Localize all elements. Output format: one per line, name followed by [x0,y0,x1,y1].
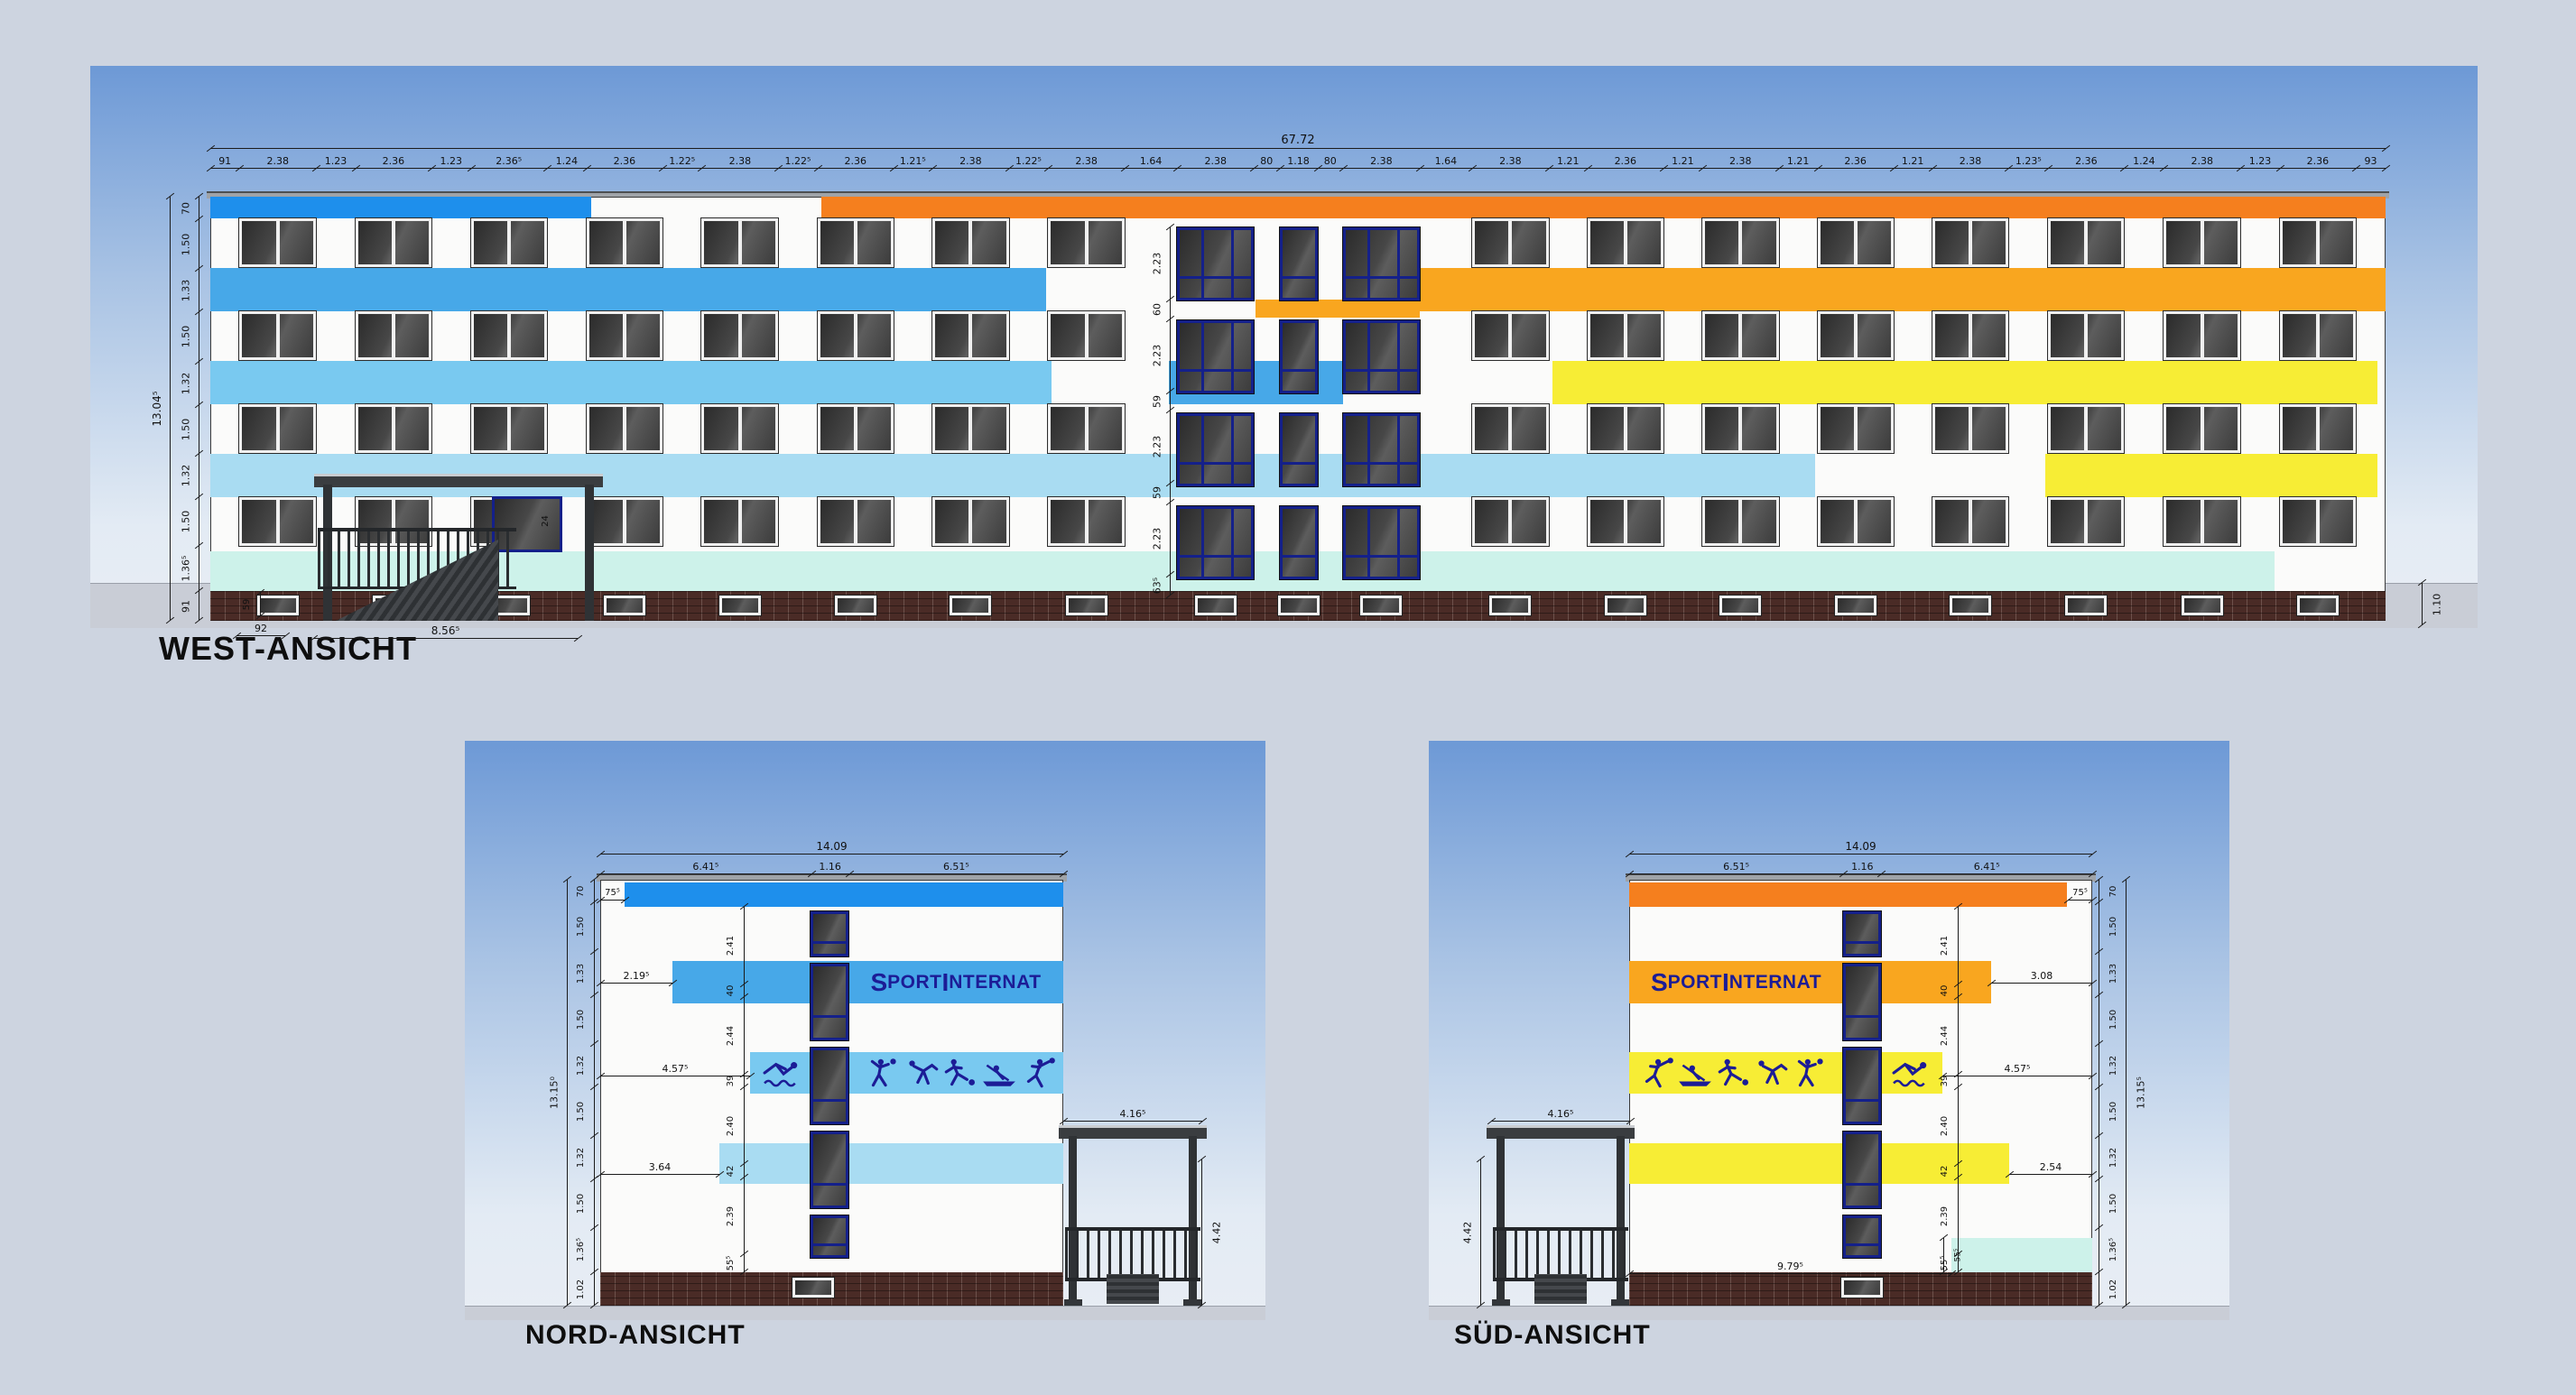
window-mullion [1367,416,1370,484]
stairwell-window [811,964,848,1040]
window-mullion [968,407,972,450]
stairwell-window [1343,506,1420,579]
window [356,311,431,360]
window-mullion [1624,500,1627,543]
window [239,218,316,267]
basement-window [1719,596,1761,615]
window-transom [1283,369,1315,372]
basement-window [1066,596,1107,615]
facade-band [625,882,1063,907]
stairwell-window [811,911,848,956]
window-mullion [2316,407,2320,450]
window [2280,404,2356,453]
basement-window [792,1278,834,1298]
window-transom [1180,462,1251,465]
stairwell-window [1177,320,1254,393]
basement-window [1360,596,1402,615]
window-mullion [1508,407,1512,450]
window-mullion [854,221,857,264]
window [2280,497,2356,546]
window-mullion [1854,500,1858,543]
stairwell-window [1843,1215,1881,1258]
window [1048,497,1125,546]
window [1048,311,1125,360]
window-transom [1283,276,1315,279]
window-mullion [1085,407,1089,450]
porch-footing [1183,1299,1201,1306]
porch-footing [1492,1299,1510,1306]
stairwell-window [1843,911,1881,956]
basement-window [257,596,299,615]
basement-window [719,596,761,615]
window [1588,497,1663,546]
window-mullion [1367,230,1370,298]
window-mullion [1738,221,1742,264]
window-mullion [1231,416,1234,484]
basement-window [1841,1278,1883,1298]
basement-window [1195,596,1237,615]
facade-band [2045,454,2377,497]
window [1588,404,1663,453]
window-mullion [1969,407,1972,450]
window [932,404,1009,453]
window [2048,497,2124,546]
window-transom [1180,276,1251,279]
stairwell-window [811,1215,848,1258]
basement-window [2182,596,2223,615]
window [356,218,431,267]
window-mullion [507,314,511,357]
window-mullion [1854,314,1858,357]
window-mullion [738,407,742,450]
porch-footing [1611,1299,1629,1306]
window [1048,404,1125,453]
window-mullion [1397,230,1400,298]
window-mullion [1231,509,1234,577]
window-mullion [2316,314,2320,357]
window [1932,218,2009,267]
stairwell-window [1280,413,1318,486]
porch-railing [1493,1227,1628,1281]
window [2048,218,2124,267]
stairwell-window [1280,506,1318,579]
window [587,497,663,546]
window-mullion [968,314,972,357]
window-mullion [1854,407,1858,450]
window [2164,404,2240,453]
window-mullion [1231,323,1234,391]
window-mullion [392,314,395,357]
window-mullion [2084,314,2088,357]
window-transom [1846,941,1878,944]
window [239,404,316,453]
window-transom [1283,555,1315,558]
stairwell-window [1343,227,1420,300]
window [2280,311,2356,360]
window [701,404,778,453]
window [1472,404,1549,453]
window [471,404,547,453]
sport-pictogram-volleyball-icon [865,1058,903,1092]
window-mullion [1085,221,1089,264]
window [2164,218,2240,267]
gable-ground [1429,1306,2229,1320]
window-mullion [1508,500,1512,543]
drawing-canvas: WEST-ANSICHT NORD-ANSICHT SÜD-ANSICHT 67… [0,0,2576,1395]
window-mullion [2084,407,2088,450]
facade-band [1629,1143,2009,1184]
window-mullion [1085,314,1089,357]
window-transom [813,941,846,944]
window-mullion [2316,221,2320,264]
window [239,497,316,546]
stairwell-window [1177,413,1254,486]
sport-pictogram-rowing-icon [1676,1058,1714,1092]
basement-window [2065,596,2107,615]
window [356,404,431,453]
north-elevation-title: NORD-ANSICHT [525,1320,746,1351]
window-mullion [738,221,742,264]
window-mullion [1201,416,1204,484]
window [587,404,663,453]
stairwell-window [1343,320,1420,393]
porch-railing [1065,1227,1200,1281]
facade-band [1951,1238,2092,1272]
porch-stairs [1107,1274,1159,1304]
basement-window [604,596,645,615]
window [701,497,778,546]
basement-window [1489,596,1531,615]
window [1932,404,2009,453]
facade-band [1420,268,2386,311]
window [1702,497,1779,546]
porch-roof [1487,1125,1635,1139]
sportinternat-logo: SPORTINTERNAT [1629,961,1843,1003]
window [818,218,894,267]
window-mullion [1397,416,1400,484]
window [471,311,547,360]
window [1818,404,1894,453]
gable-ground [465,1306,1265,1320]
window-mullion [1508,221,1512,264]
window-transom [813,1183,846,1186]
window [1818,497,1894,546]
basement-window [950,596,991,615]
stairwell-window [1343,413,1420,486]
window-mullion [1624,221,1627,264]
window-transom [813,1099,846,1102]
window-transom [1346,462,1417,465]
window-mullion [1854,221,1858,264]
window-transom [1846,1243,1878,1246]
window-mullion [2316,500,2320,543]
window-mullion [2084,500,2088,543]
window-transom [1283,462,1315,465]
stairwell-window [1280,227,1318,300]
window-mullion [623,407,626,450]
window-mullion [1231,230,1234,298]
stairwell-window [1177,227,1254,300]
window-mullion [1201,323,1204,391]
window-transom [1846,1183,1878,1186]
window-mullion [276,500,280,543]
window [932,497,1009,546]
window [932,311,1009,360]
sport-pictogram-handball-icon [1638,1058,1676,1092]
window [1588,218,1663,267]
window-transom [1180,369,1251,372]
window-mullion [1738,500,1742,543]
sport-pictogram-soccer-icon [941,1058,978,1092]
window-transom [1346,369,1417,372]
window-mullion [1624,407,1627,450]
window-mullion [392,407,395,450]
sport-pictogram-judo-icon [1752,1058,1790,1092]
window [2164,311,2240,360]
window-mullion [623,500,626,543]
window [239,311,316,360]
window [701,311,778,360]
window [1818,218,1894,267]
window [1818,311,1894,360]
window-mullion [276,407,280,450]
window-mullion [1969,500,1972,543]
sport-pictogram-rowing-icon [980,1058,1018,1092]
stairwell-window [1843,964,1881,1040]
window-mullion [738,314,742,357]
window-mullion [854,407,857,450]
window-mullion [1508,314,1512,357]
window-mullion [968,500,972,543]
window-mullion [2201,407,2204,450]
basement-window [1950,596,1991,615]
window [2280,218,2356,267]
window-mullion [2201,500,2204,543]
window-mullion [1738,314,1742,357]
basement-window [1835,596,1876,615]
window-mullion [2201,221,2204,264]
window-mullion [507,407,511,450]
porch-roof [314,474,603,487]
sport-pictogram-swimming-icon [763,1058,801,1092]
window-transom [1180,555,1251,558]
window-transom [1846,1099,1878,1102]
west-elevation-title: WEST-ANSICHT [159,630,417,668]
porch-footing [1064,1299,1082,1306]
facade-band [210,361,1052,404]
sport-pictogram-soccer-icon [1714,1058,1752,1092]
window [471,218,547,267]
porch-column [585,485,594,621]
window-mullion [968,221,972,264]
window [2164,497,2240,546]
window [1702,404,1779,453]
porch-roof [1059,1125,1207,1139]
window-transom [1346,555,1417,558]
window-transom [813,1015,846,1018]
window [2048,311,2124,360]
window [818,311,894,360]
window [1932,497,2009,546]
window-mullion [1201,230,1204,298]
facade-band [719,1143,1063,1184]
window [932,218,1009,267]
window-mullion [507,221,511,264]
window [1048,218,1125,267]
window [1702,218,1779,267]
sportinternat-logo: SPORTINTERNAT [848,961,1063,1003]
stairwell-window [1280,320,1318,393]
window-mullion [623,221,626,264]
window-transom [813,1243,846,1246]
facade-band [1552,361,2377,404]
window-mullion [1624,314,1627,357]
window-mullion [1969,221,1972,264]
window-mullion [1201,509,1204,577]
stairwell-window [1177,506,1254,579]
window [1472,497,1549,546]
sport-pictogram-judo-icon [903,1058,941,1092]
facade-band [1629,882,2067,907]
window-mullion [854,500,857,543]
window-mullion [1397,509,1400,577]
window-mullion [1397,323,1400,391]
stairwell-window [811,1048,848,1124]
window-mullion [738,500,742,543]
basement-window [1278,596,1320,615]
window-mullion [1969,314,1972,357]
window [587,218,663,267]
window [701,218,778,267]
stairwell-window [811,1132,848,1208]
facade-band [821,197,2386,218]
facade-band [210,197,591,218]
window-mullion [2084,221,2088,264]
window-mullion [2201,314,2204,357]
window-transom [1346,276,1417,279]
south-elevation-title: SÜD-ANSICHT [1454,1320,1651,1351]
basement-window [1605,596,1646,615]
sport-pictogram-volleyball-icon [1792,1058,1830,1092]
window-mullion [276,221,280,264]
window [587,311,663,360]
basement-window [2297,596,2339,615]
window [1472,218,1549,267]
door-dim-label: 24 [541,515,551,527]
window-mullion [1085,500,1089,543]
window-mullion [1367,509,1370,577]
facade-band [1256,300,1420,318]
window [818,497,894,546]
window [1588,311,1663,360]
window [2048,404,2124,453]
window-mullion [623,314,626,357]
stairwell-window [1843,1132,1881,1208]
window-mullion [392,221,395,264]
stairwell-window [1843,1048,1881,1124]
window-mullion [1367,323,1370,391]
window [818,404,894,453]
window-transom [1846,1015,1878,1018]
window-mullion [854,314,857,357]
window [1472,311,1549,360]
window-mullion [276,314,280,357]
window [1702,311,1779,360]
window [1932,311,2009,360]
porch-stairs [1534,1274,1587,1304]
sport-pictogram-handball-icon [1020,1058,1058,1092]
basement-window [835,596,876,615]
facade-band [210,268,1046,311]
window-mullion [1738,407,1742,450]
sport-pictogram-swimming-icon [1892,1058,1930,1092]
